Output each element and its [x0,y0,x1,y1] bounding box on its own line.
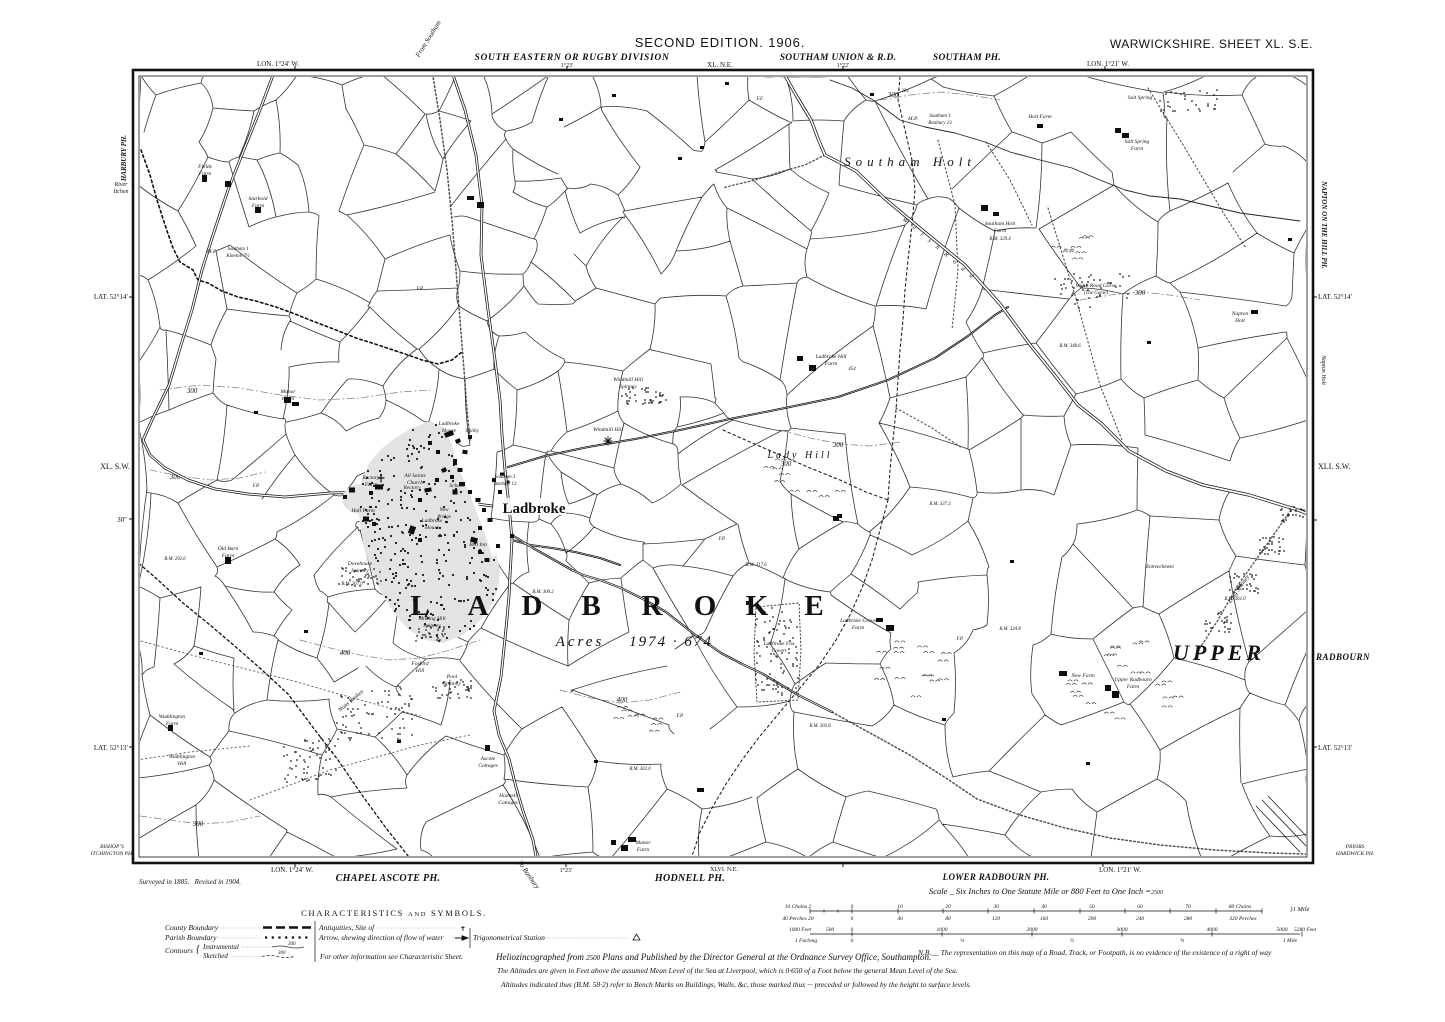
svg-text:Ladbroke Fox: Ladbroke Fox [763,641,795,647]
svg-text:320 Perches: 320 Perches [1228,916,1256,922]
svg-text:ITCHINGTON PH.: ITCHINGTON PH. [90,851,134,857]
svg-text:B.M. 292.6: B.M. 292.6 [164,557,186,562]
svg-text:SOUTHAM UNION & R.D.: SOUTHAM UNION & R.D. [780,53,897,63]
svg-text:160: 160 [1040,916,1049,922]
svg-text:30″: 30″ [117,516,127,524]
svg-text:Lady Hill: Lady Hill [766,450,832,461]
svg-text:XL. N.E.: XL. N.E. [707,61,733,69]
svg-text:1 Mile: 1 Mile [1283,938,1298,944]
svg-text:Hill: Hill [177,761,187,767]
svg-text:300: 300 [1134,289,1146,297]
svg-text:}1 Mile: }1 Mile [1290,906,1310,913]
svg-text:Farm: Farm [198,171,211,177]
svg-text:60: 60 [1137,904,1143,910]
svg-text:HODNELL PH.: HODNELL PH. [654,873,725,884]
svg-text:B.M. 302.0: B.M. 302.0 [629,767,651,772]
svg-text:400: 400 [617,696,628,704]
svg-text:Waddington: Waddington [169,754,196,760]
svg-text:Hodnell: Hodnell [498,793,517,799]
svg-text:Holt Farm: Holt Farm [1027,114,1051,120]
svg-text:M.P.: M.P. [206,249,217,255]
svg-text:New: New [439,508,450,513]
svg-text:Spinney: Spinney [443,681,461,687]
svg-text:Ladbroke Grove: Ladbroke Grove [839,618,876,624]
svg-text:B.M. 337.3: B.M. 337.3 [929,502,951,507]
svg-text:B.M. 324.8: B.M. 324.8 [999,627,1021,632]
svg-text:Fields: Fields [197,164,212,170]
svg-text:RADBOURN: RADBOURN [1315,652,1370,662]
svg-text:Trigonometrical Station: Trigonometrical Station [473,933,545,942]
svg-text:Southam Holt: Southam Holt [844,154,976,169]
svg-text:Pool: Pool [446,674,458,680]
svg-text:Farm: Farm [281,396,294,402]
svg-text:LAT. 52°14′: LAT. 52°14′ [94,293,129,301]
svg-text:Ladbroke: Ladbroke [502,501,565,517]
svg-text:300: 300 [887,91,899,99]
svg-text:SOUTH EASTERN OR RUGBY DIV: SOUTH EASTERN OR RUGBY DIVISION [474,53,669,63]
svg-text:3000: 3000 [1116,927,1128,933]
svg-text:70: 70 [1185,904,1191,910]
svg-text:LAT. 52°14′: LAT. 52°14′ [1318,293,1353,301]
svg-text:Farm: Farm [165,721,178,727]
svg-text:Hall Farm: Hall Farm [350,508,374,514]
svg-text:LAT. 52°13′: LAT. 52°13′ [1318,744,1353,752]
svg-text:Scale _ Six Inches to One Stat: Scale _ Six Inches to One Statute Mile o… [929,886,1163,896]
svg-text:L: L [410,590,429,622]
svg-text:0: 0 [851,938,854,944]
svg-text:280: 280 [1184,916,1193,922]
svg-text:Farm: Farm [1126,684,1139,690]
svg-text:B: B [581,590,600,622]
svg-text:Banbury 12: Banbury 12 [494,482,517,487]
svg-text:500: 500 [826,927,835,933]
svg-text:County Boundary: County Boundary [165,923,219,932]
svg-text:¼: ¼ [960,938,964,944]
svg-text:454: 454 [848,367,856,372]
svg-text:F.P.: F.P. [717,537,725,542]
svg-text:80: 80 [945,916,951,922]
svg-text:¾: ¾ [1180,938,1184,944]
svg-text:10 Chains 2: 10 Chains 2 [785,904,812,910]
svg-text:Smithy: Smithy [465,429,479,434]
svg-text:Welsh Road Gorse: Welsh Road Gorse [1076,283,1117,289]
svg-text:1974 · 674: 1974 · 674 [629,634,713,650]
svg-text:Cottages: Cottages [478,763,498,769]
svg-text:M.P.: M.P. [907,116,918,122]
svg-text:Dovehouse: Dovehouse [347,561,373,567]
svg-text:240: 240 [1136,915,1145,922]
svg-text:1000 Feet: 1000 Feet [789,927,812,933]
svg-text:XL. S.W.: XL. S.W. [100,462,130,471]
svg-text:Farm: Farm [364,482,377,488]
svg-text:Windmill Hill: Windmill Hill [593,427,623,433]
svg-text:LON. 1°21′ W.: LON. 1°21′ W. [1099,866,1141,874]
svg-text:300: 300 [192,820,204,828]
svg-text:B.M. 317.6: B.M. 317.6 [745,563,767,568]
svg-text:Southam 1: Southam 1 [227,247,248,252]
svg-text:LAT. 52°13′: LAT. 52°13′ [94,744,129,752]
svg-text:Kineton 7½: Kineton 7½ [225,254,250,259]
svg-text:Ladbroke Hill: Ladbroke Hill [815,354,847,360]
svg-text:F.P.: F.P. [955,637,963,642]
svg-text:LOWER RADBOURN PH.: LOWER RADBOURN PH. [942,872,1050,882]
svg-text:300: 300 [780,460,792,468]
svg-text:Manor: Manor [635,840,652,846]
svg-text:O: O [694,590,717,622]
svg-text:R: R [642,590,664,622]
svg-text:CHARACTERISTICS AND SYMBOLS.: CHARACTERISTICS AND SYMBOLS. [301,908,487,918]
svg-text:SECOND EDITION. 1906.: SECOND EDITION. 1906. [635,35,806,50]
svg-text:House: House [424,525,440,531]
svg-text:B.M. 303.8: B.M. 303.8 [809,724,831,729]
svg-text:HARDWICK PH.: HARDWICK PH. [1335,851,1375,857]
svg-text:Salt Spring: Salt Spring [1125,139,1150,145]
svg-text:F.P.: F.P. [415,287,423,292]
svg-text:Covert: Covert [772,648,787,654]
svg-text:Starbold: Starbold [249,196,268,202]
svg-text:Parish Boundary: Parish Boundary [164,933,217,942]
svg-text:Contours: Contours [165,946,193,955]
svg-text:Arrow, shewing direction of fl: Arrow, shewing direction of flow of wate… [318,933,444,942]
svg-text:Instrumental: Instrumental [202,943,239,951]
svg-text:5280 Feet: 5280 Feet [1294,927,1317,933]
svg-text:Ascote: Ascote [480,756,496,762]
svg-text:40: 40 [1041,903,1047,910]
svg-text:SOUTHAM PH.: SOUTHAM PH. [933,53,1001,63]
svg-text:1°23′: 1°23′ [560,867,573,874]
svg-text:120: 120 [992,916,1001,922]
svg-text:Spinney: Spinney [423,623,441,629]
svg-text:300: 300 [288,942,296,947]
svg-text:✝: ✝ [460,925,466,933]
svg-text:B.M. 329.4: B.M. 329.4 [989,237,1011,242]
svg-text:50: 50 [1089,904,1095,910]
svg-text:304: 304 [901,89,909,94]
svg-text:½: ½ [1070,937,1074,944]
svg-text:A: A [468,590,489,622]
svg-text:Spinney: Spinney [351,568,369,574]
svg-text:UPPER: UPPER [1173,640,1265,665]
svg-text:Surveyed in 1885. Revised in: Surveyed in 1885. Revised in 1904. [139,878,241,886]
svg-text:80 Chains: 80 Chains [1229,904,1251,910]
svg-text:Sketched: Sketched [203,952,228,960]
svg-text:Holt: Holt [1234,318,1245,324]
svg-text:LON. 1°21′ W.: LON. 1°21′ W. [1087,60,1129,68]
svg-text:XLI. S.W.: XLI. S.W. [1318,462,1351,471]
svg-text:Napton: Napton [1231,311,1248,317]
svg-text:Farm: Farm [636,847,649,853]
svg-text:Heliozincographed from 2500 Pl: Heliozincographed from 2500 Plans and Pu… [495,952,931,962]
svg-text:Farm: Farm [1130,146,1143,152]
svg-text:B.M. 348.6: B.M. 348.6 [1059,344,1081,349]
svg-text:Southam 3: Southam 3 [495,475,516,480]
svg-text:Acres: Acres [555,634,605,650]
svg-text:300: 300 [832,441,844,449]
svg-text:5000: 5000 [1277,927,1288,933]
svg-text:Farm: Farm [993,228,1006,234]
svg-text:40 Perches 20: 40 Perches 20 [782,915,814,922]
svg-text:D: D [522,590,543,622]
svg-text:Ladbroke: Ladbroke [421,518,443,524]
svg-text:30: 30 [992,904,999,910]
svg-text:Fosford: Fosford [410,660,428,667]
svg-text:BISHOP’S: BISHOP’S [100,844,124,850]
svg-text:F.F.: F.F. [755,97,763,102]
svg-text:300: 300 [278,951,286,956]
svg-text:Bell Inn: Bell Inn [469,542,487,548]
svg-text:PRIORS: PRIORS [1345,844,1365,850]
svg-text:All Saints: All Saints [403,473,425,479]
svg-text:For other information see Char: For other information see Characteristic… [319,952,463,961]
svg-text:Antiquities, Site of: Antiquities, Site of [318,923,375,932]
svg-text:Salt Spring: Salt Spring [1128,95,1153,101]
svg-text:School: School [450,483,465,489]
svg-text:Banbury 13: Banbury 13 [928,121,952,126]
svg-text:F.P.: F.P. [251,484,259,489]
svg-text:Farm: Farm [851,625,864,631]
svg-text:Southam Holt: Southam Holt [985,221,1016,227]
svg-text:Farm: Farm [824,361,837,367]
svg-text:20: 20 [945,904,951,910]
svg-text:400: 400 [340,649,351,657]
svg-text:300: 300 [186,387,198,395]
svg-text:{: { [196,944,200,955]
svg-text:E: E [804,590,823,622]
svg-text:Ladbroke: Ladbroke [438,421,460,427]
svg-text:LON. 1°24′ W.: LON. 1°24′ W. [257,60,299,68]
svg-text:LON. 1°24′ W.: LON. 1°24′ W. [271,866,313,874]
svg-text:NAPTON ON THE HILL PH.: NAPTON ON THE HILL PH. [1320,180,1328,269]
svg-text:0: 0 [851,916,854,922]
svg-text:Farm: Farm [251,203,264,209]
svg-text:Rectory: Rectory [361,475,380,481]
svg-text:Windmill Hill: Windmill Hill [613,377,643,383]
svg-text:B.M. 307.0: B.M. 307.0 [341,582,363,587]
svg-text:Hill: Hill [415,668,425,674]
svg-text:CHAPEL ASCOTE PH.: CHAPEL ASCOTE PH. [336,873,441,884]
svg-text:Upper Radbourn: Upper Radbourn [1114,677,1152,683]
svg-text:1 Furlong: 1 Furlong [795,938,817,944]
svg-text:200: 200 [1088,916,1097,922]
svg-text:Spinney: Spinney [619,384,637,390]
svg-text:Altitudes indicated thus (B.M.: Altitudes indicated thus (B.M. 58·2) ref… [500,980,971,989]
svg-text:40: 40 [897,915,903,922]
svg-text:N.B.__ The representation on t: N.B.__ The representation on this map of… [917,948,1272,957]
svg-text:Farm: Farm [221,553,234,559]
svg-text:Old Barn: Old Barn [218,546,239,552]
svg-text:WARWICKSHIRE. SHEET XL. S.E.: WARWICKSHIRE. SHEET XL. S.E. [1110,37,1313,51]
svg-text:Southam 1: Southam 1 [929,114,950,119]
svg-text:House: House [441,428,457,434]
svg-text:Entrenchment: Entrenchment [1145,565,1174,570]
svg-text:New Farm: New Farm [1070,673,1094,679]
svg-text:K: K [746,590,769,622]
svg-text:HARBURY PH.: HARBURY PH. [120,135,128,183]
svg-text:The Altitudes are given in Fee: The Altitudes are given in Feet above th… [497,966,958,975]
svg-text:Waddington: Waddington [159,714,186,720]
svg-text:F.P.: F.P. [675,714,683,719]
svg-text:Cottages: Cottages [498,800,518,806]
svg-text:Manor: Manor [280,389,297,395]
svg-text:Itchen: Itchen [113,189,129,195]
svg-text:River: River [114,182,129,188]
svg-text:Napton Holt: Napton Holt [1320,354,1326,385]
svg-text:Church: Church [407,480,424,486]
svg-text:(The Gorse): (The Gorse) [1084,291,1109,296]
